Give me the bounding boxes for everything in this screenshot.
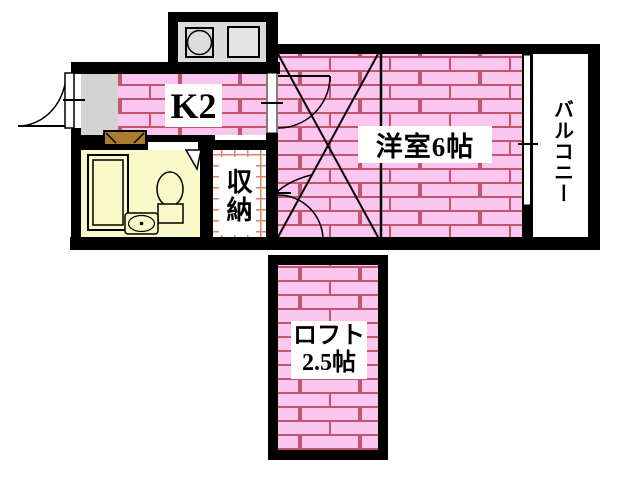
toilet-bowl-icon	[157, 172, 183, 206]
bath-storage-divider-wall	[200, 135, 213, 237]
top-wall	[278, 44, 600, 54]
counter-left-wall	[168, 12, 178, 62]
loft-label-line1: ロフト	[293, 323, 365, 350]
loft-label: ロフト 2.5帖	[291, 321, 367, 379]
balcony-label: バルコニー	[546, 84, 578, 218]
basin-drain-icon	[140, 222, 144, 226]
kitchen-top-wall	[71, 62, 280, 74]
loft-label-line2: 2.5帖	[302, 350, 356, 377]
stove-fixture	[228, 27, 259, 57]
bottom-wall	[70, 237, 600, 250]
counter-top-wall	[168, 12, 278, 22]
entry-door-swing-arc	[18, 73, 66, 126]
floor-plan-drawing	[0, 0, 622, 479]
toilet-tank-icon	[158, 204, 183, 223]
floor-plan: K2 洋室6帖 収納 バルコニー ロフト 2.5帖	[0, 0, 622, 479]
sink-bowl-icon	[188, 31, 212, 55]
balcony-window	[524, 55, 531, 205]
balcony-right-wall	[588, 44, 600, 250]
storage-top-wall	[213, 140, 278, 150]
entry-floor	[81, 74, 118, 135]
left-wall-upper	[71, 62, 81, 73]
bathroom-door-opening	[148, 142, 198, 150]
kitchen-room-label: K2	[165, 84, 222, 127]
western-room-label: 洋室6帖	[358, 126, 492, 163]
storage-room-label: 収納	[219, 157, 256, 235]
